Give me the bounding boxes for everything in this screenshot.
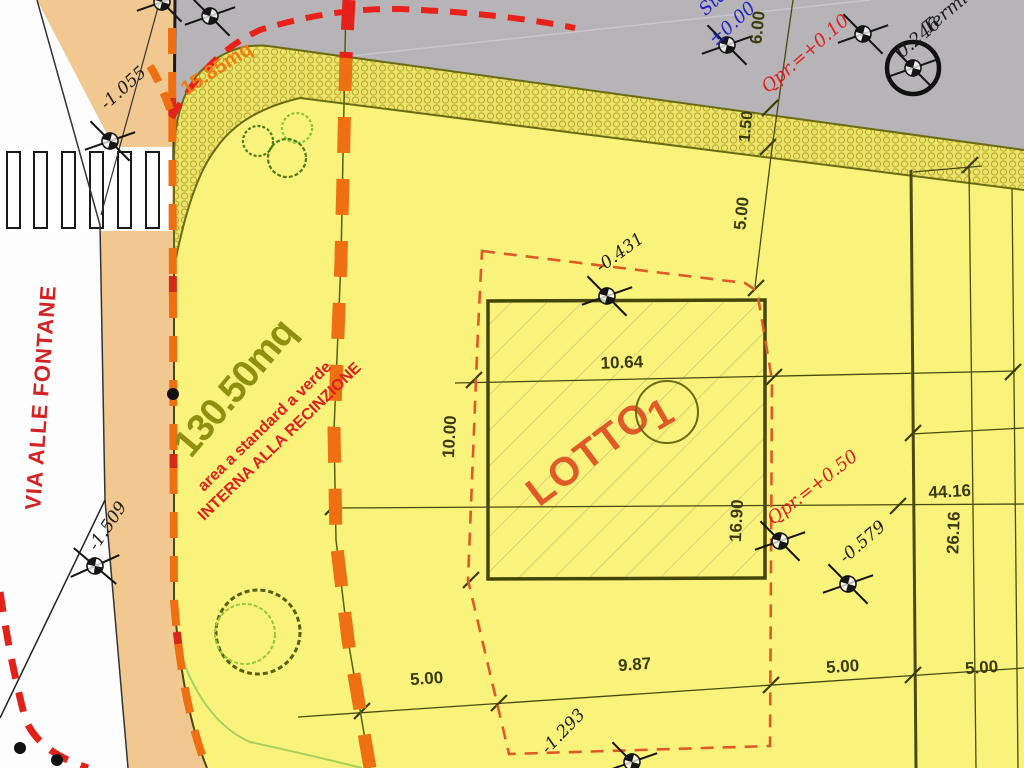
dim-row-inner: 26.16 [943, 511, 963, 554]
dim-bottom-3: 5.00 [825, 656, 859, 677]
dim-road-width: 6.00 [746, 10, 768, 45]
dim-bottom-1: 5.00 [409, 668, 443, 689]
site-plan-drawing: VIA ALLE FONTANE 15.85mq 130.50mq area a… [0, 0, 1024, 768]
dim-bottom-2: 9.87 [617, 654, 651, 675]
boundary-dot [51, 754, 63, 766]
street-name-label: VIA ALLE FONTANE [20, 284, 61, 511]
boundary-dot [14, 742, 26, 754]
dim-row-total: 44.16 [928, 481, 971, 502]
dim-lot-width: 10.64 [600, 352, 644, 372]
boundary-dashed-far-left [0, 592, 88, 768]
site-plan-page: VIA ALLE FONTANE 15.85mq 130.50mq area a… [0, 0, 1024, 768]
dim-verge-width: 1.50 [736, 110, 756, 143]
dim-bottom-4: 5.00 [964, 657, 998, 678]
dim-setback-top: 5.00 [730, 196, 752, 231]
dim-lot-height: 16.90 [726, 499, 747, 542]
survey-line-bottomleft [0, 500, 105, 718]
dim-building-side: 10.00 [439, 415, 460, 458]
boundary-dot [167, 388, 179, 400]
